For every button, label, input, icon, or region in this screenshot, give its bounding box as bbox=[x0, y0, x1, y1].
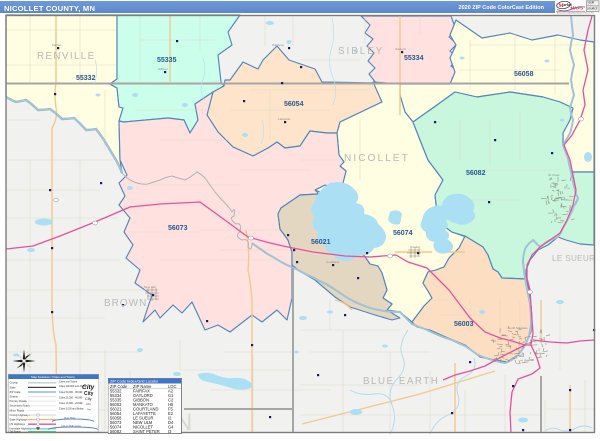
svg-text:North Mankato: North Mankato bbox=[508, 326, 528, 330]
svg-text:New Ulm: New Ulm bbox=[144, 285, 157, 289]
svg-text:56073: 56073 bbox=[168, 225, 188, 232]
svg-text:Courtland: Courtland bbox=[326, 260, 339, 264]
svg-text:State Plane: State Plane bbox=[64, 417, 76, 420]
svg-text:RENVILLE: RENVILLE bbox=[37, 51, 96, 62]
svg-text:ZIP Code Index/Grid Locator: ZIP Code Index/Grid Locator bbox=[110, 379, 159, 383]
svg-text:Lafayette: Lafayette bbox=[278, 117, 291, 121]
svg-text:Cities and Towns: Cities and Towns bbox=[59, 381, 78, 384]
svg-text:Gibbon: Gibbon bbox=[158, 67, 168, 71]
svg-text:Streets: Streets bbox=[10, 395, 19, 399]
svg-text:County: County bbox=[10, 381, 19, 385]
svg-text:US Highways: US Highways bbox=[10, 422, 26, 426]
svg-text:56054: 56054 bbox=[284, 101, 304, 108]
svg-text:SAINT PETER: SAINT PETER bbox=[133, 428, 160, 433]
svg-text:Secondary Roads: Secondary Roads bbox=[10, 404, 31, 408]
svg-text:Fairfax: Fairfax bbox=[52, 43, 62, 47]
svg-text:LE SUEUR: LE SUEUR bbox=[552, 254, 595, 263]
svg-text:56082: 56082 bbox=[110, 428, 122, 433]
svg-text:Minor Roads: Minor Roads bbox=[10, 408, 25, 412]
svg-text:City: City bbox=[82, 384, 95, 391]
svg-text:Nicollet: Nicollet bbox=[410, 245, 420, 249]
svg-text:56003: 56003 bbox=[454, 321, 474, 328]
svg-text:SIBLEY: SIBLEY bbox=[338, 46, 384, 57]
svg-text:SOURCE: SOURCE bbox=[587, 8, 598, 11]
svg-text:Toll Roads: Toll Roads bbox=[10, 430, 22, 433]
svg-text:56082: 56082 bbox=[466, 170, 486, 177]
svg-text:Cities 25,000 - 49,999: Cities 25,000 - 49,999 bbox=[59, 397, 83, 400]
svg-text:State Highways: State Highways bbox=[10, 418, 29, 422]
svg-text:St. Peter: St. Peter bbox=[548, 173, 560, 177]
svg-text:56074: 56074 bbox=[393, 230, 413, 237]
svg-text:56021: 56021 bbox=[311, 239, 331, 246]
svg-text:BLUE EARTH: BLUE EARTH bbox=[363, 376, 439, 387]
svg-text:City: City bbox=[85, 397, 92, 401]
svg-text:NICOLLET: NICOLLET bbox=[344, 153, 410, 164]
svg-text:56058: 56058 bbox=[514, 71, 534, 78]
svg-text:County Highways: County Highways bbox=[10, 413, 31, 417]
svg-text:BROWN: BROWN bbox=[104, 298, 147, 309]
svg-text:MAPS: MAPS bbox=[571, 6, 584, 11]
svg-text:State: State bbox=[10, 385, 17, 389]
svg-text:Gaylord: Gaylord bbox=[395, 47, 406, 51]
svg-text:City: City bbox=[86, 402, 91, 406]
svg-text:Cities 5,000 and Below: Cities 5,000 and Below bbox=[59, 408, 84, 411]
svg-text:Primary Roads: Primary Roads bbox=[10, 399, 28, 403]
svg-text:Cities 50,000 - 99,999: Cities 50,000 - 99,999 bbox=[59, 391, 83, 394]
svg-text:55332: 55332 bbox=[76, 75, 96, 82]
svg-text:Cities 10,000 - 24,999: Cities 10,000 - 24,999 bbox=[59, 402, 83, 405]
svg-text:Map Features / Cities and Town: Map Features / Cities and Towns bbox=[31, 375, 75, 379]
svg-text:55334: 55334 bbox=[404, 55, 424, 62]
svg-text:55335: 55335 bbox=[157, 57, 177, 64]
svg-text:ZIP Code: ZIP Code bbox=[10, 390, 21, 394]
svg-text:Winthrop: Winthrop bbox=[272, 43, 284, 47]
svg-text:Lat/Lon Grid Locator: Lat/Lon Grid Locator bbox=[61, 425, 81, 428]
